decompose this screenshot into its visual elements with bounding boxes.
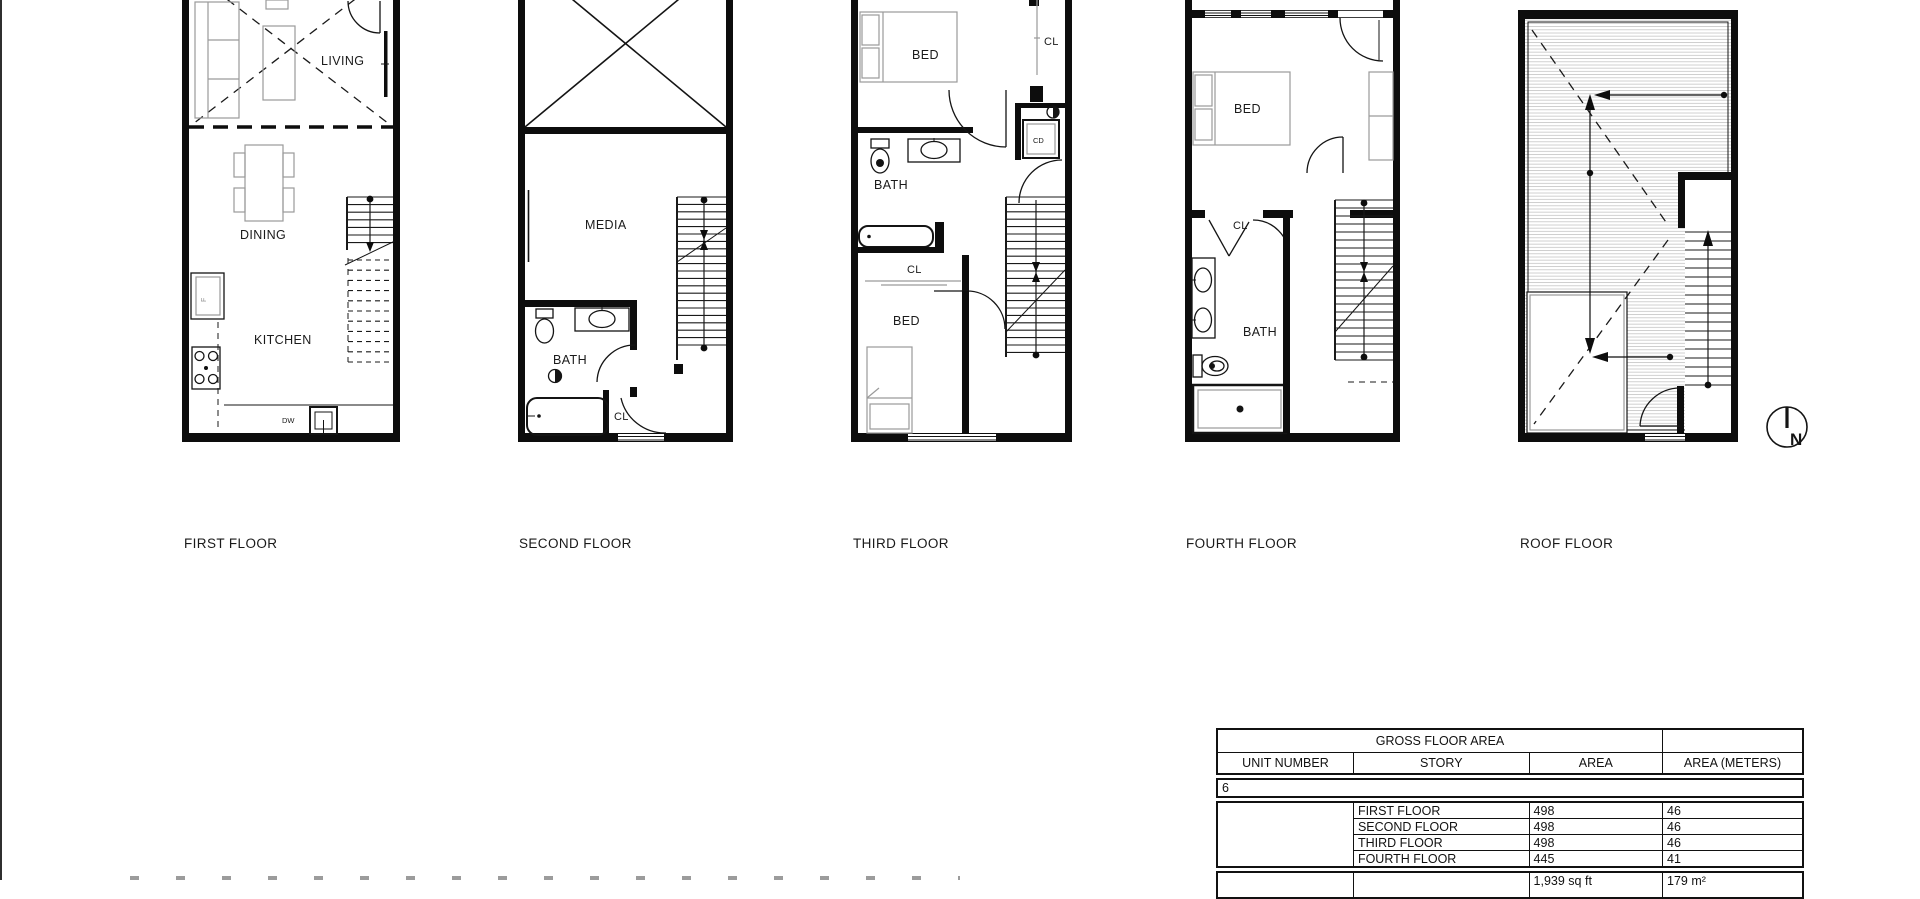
floor-label-roof: ROOF FLOOR: [1520, 536, 1613, 551]
story-cell: SECOND FLOOR: [1353, 819, 1529, 835]
floor-label-first: FIRST FLOOR: [184, 536, 277, 551]
toilet: [536, 309, 554, 343]
north-letter: N: [1790, 430, 1802, 449]
bathtub: [858, 222, 944, 253]
floor-plan-roof-drawing: [1518, 0, 1738, 442]
unit-cell-empty: [1217, 802, 1353, 867]
total-row: 1,939 sq ft 179 m²: [1217, 872, 1803, 898]
open-to-below-x: [525, 0, 726, 127]
north-arrow: N: [1764, 404, 1810, 455]
staircase: [1006, 197, 1065, 358]
bed-double: [860, 12, 957, 82]
area-cell: 498: [1529, 819, 1662, 835]
partition-wall: [962, 291, 969, 433]
total-unit-empty: [1217, 872, 1353, 898]
entry-door-top: [1338, 11, 1383, 61]
room-label-dining: DINING: [240, 228, 286, 242]
door-threshold: [618, 434, 664, 441]
total-area: 1,939 sq ft: [1529, 872, 1662, 898]
area-cell: 498: [1529, 835, 1662, 851]
bedroom-door: [1307, 137, 1343, 173]
washer-dryer-combo: CD: [1015, 103, 1065, 160]
wardrobe: [1369, 72, 1393, 160]
toilet: [1193, 355, 1228, 377]
bed-single: [867, 347, 912, 433]
table-row: FIRST FLOOR 498 46: [1217, 802, 1803, 819]
walls-mid: [1185, 210, 1393, 218]
bathtub: [527, 398, 608, 435]
table-title: GROSS FLOOR AREA: [1217, 729, 1663, 753]
closet-top: CL: [1034, 0, 1059, 75]
room-label-bed-top: BED: [912, 48, 939, 62]
col-header-story: STORY: [1353, 753, 1529, 775]
table-body-section: FIRST FLOOR 498 46 SECOND FLOOR 498 46 T…: [1216, 801, 1804, 868]
bed2-door: [934, 291, 1005, 329]
coffee-table: [263, 26, 295, 100]
room-label-bath: BATH: [874, 178, 908, 192]
svg-text:F: F: [201, 298, 208, 302]
table-title-spacer: [1663, 729, 1804, 753]
dining-table-set: [234, 145, 294, 221]
refrigerator: F: [191, 273, 224, 319]
col-header-area-meters: AREA (METERS): [1663, 753, 1804, 775]
col-header-unit-number: UNIT NUMBER: [1217, 753, 1353, 775]
staircase: [345, 196, 395, 362]
room-label-living: LIVING: [321, 54, 364, 68]
gross-floor-area-table: GROSS FLOOR AREA UNIT NUMBER STORY AREA …: [1216, 728, 1804, 899]
double-vanity: [1192, 258, 1215, 338]
room-label-closet: CL: [1233, 220, 1248, 232]
area-meters-cell: 46: [1663, 835, 1804, 851]
room-label-media: MEDIA: [585, 218, 627, 232]
story-cell: FOURTH FLOOR: [1353, 851, 1529, 868]
label-dw: DW: [282, 416, 295, 425]
walls: [851, 0, 1072, 442]
page-border-left: [0, 0, 2, 880]
table-header-section: GROSS FLOOR AREA UNIT NUMBER STORY AREA …: [1216, 728, 1804, 775]
label-cd: CD: [1033, 136, 1044, 145]
room-label-closet-mid: CL: [907, 264, 922, 276]
floor-plan-third: BED CL BATH CD CL: [851, 0, 1072, 442]
door-threshold: [908, 434, 996, 441]
floor-plan-fourth: BED CL BATH: [1185, 0, 1400, 442]
staircase: [1335, 200, 1393, 382]
unit-number-section: 6: [1216, 778, 1804, 798]
vanity-sink: [575, 307, 629, 331]
closet-doors: [1209, 220, 1289, 256]
total-area-meters: 179 m²: [1663, 872, 1804, 898]
floor-plan-fourth-drawing: BED CL BATH: [1185, 0, 1400, 442]
toilet: [871, 139, 889, 173]
dishwasher: DW: [282, 407, 337, 434]
floor-label-third: THIRD FLOOR: [853, 536, 949, 551]
staircase: [674, 197, 726, 374]
bath-door: [597, 345, 635, 382]
story-cell: THIRD FLOOR: [1353, 835, 1529, 851]
stove: [192, 347, 220, 389]
floor-plan-third-drawing: BED CL BATH CD CL: [851, 0, 1072, 442]
shower: [1193, 385, 1286, 433]
area-cell: 445: [1529, 851, 1662, 868]
room-label-closet-top: CL: [1044, 36, 1059, 48]
floor-plan-first: LIVING DINING KITCHEN F DW: [182, 0, 400, 442]
floor-plan-first-drawing: LIVING DINING KITCHEN F DW: [182, 0, 400, 442]
sofa: [195, 2, 239, 118]
story-cell: FIRST FLOOR: [1353, 802, 1529, 819]
walls: [182, 0, 400, 442]
area-cell: 498: [1529, 802, 1662, 819]
floor-label-fourth: FOURTH FLOOR: [1186, 536, 1297, 551]
floor-plan-second-drawing: MEDIA BATH CL: [518, 0, 733, 442]
room-label-kitchen: KITCHEN: [254, 333, 312, 347]
floor-plan-sheet: { "floor_plans": [ { "id": "first", "lab…: [0, 0, 1920, 880]
stair-direction-arrow: [366, 242, 374, 252]
wall-tv: [381, 31, 389, 97]
total-story-empty: [1353, 872, 1529, 898]
unit-number-value: 6: [1217, 779, 1803, 797]
entry-door: [348, 1, 380, 33]
vanity-sink: [908, 138, 960, 162]
windows-top: [1205, 11, 1328, 17]
low-roof-area: [1527, 292, 1627, 433]
room-label-bed: BED: [1234, 102, 1261, 116]
room-label-bath: BATH: [553, 353, 587, 367]
col-header-area: AREA: [1529, 753, 1662, 775]
floor-plan-roof: [1518, 0, 1738, 442]
closet-mid: CL: [865, 255, 969, 293]
cutoff-caption-letter-tops: [130, 876, 960, 880]
area-meters-cell: 41: [1663, 851, 1804, 868]
area-meters-cell: 46: [1663, 802, 1804, 819]
partition-wall: [1283, 218, 1290, 433]
floor-plan-second: MEDIA BATH CL: [518, 0, 733, 442]
shower-symbol: [549, 370, 562, 383]
floor-label-second: SECOND FLOOR: [519, 536, 632, 551]
area-meters-cell: 46: [1663, 819, 1804, 835]
room-label-bath: BATH: [1243, 325, 1277, 339]
room-label-bed-bottom: BED: [893, 314, 920, 328]
console-table: [266, 0, 288, 9]
table-total-section: 1,939 sq ft 179 m²: [1216, 871, 1804, 899]
